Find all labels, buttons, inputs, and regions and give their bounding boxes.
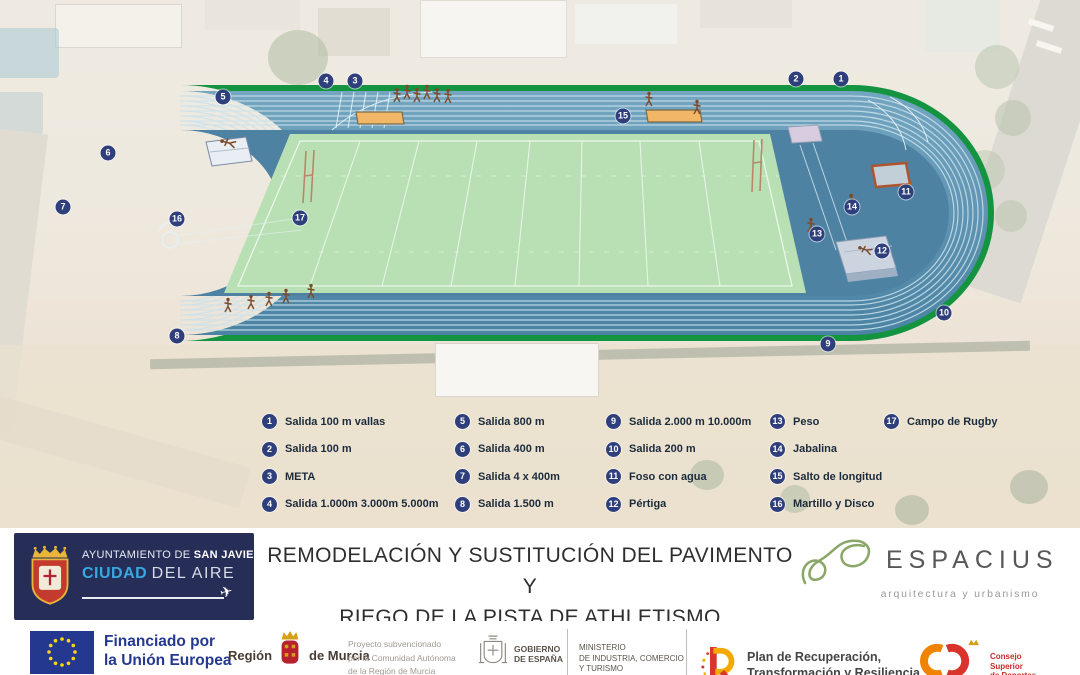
legend-label: Pértiga xyxy=(629,498,666,510)
map-legend: 1Salida 100 m vallas2Salida 100 m3META4S… xyxy=(0,0,1080,528)
espacius-swirl-icon xyxy=(800,534,884,590)
gobierno-line1: GOBIERNO xyxy=(514,644,563,654)
san-javier-logo: AYUNTAMIENTO DE SAN JAVIER CIUDAD DEL AI… xyxy=(14,533,254,620)
gobierno-line2: DE ESPAÑA xyxy=(514,654,563,664)
legend-item-16: 16Martillo y Disco xyxy=(770,497,874,512)
eu-funding-line1: Financiado por xyxy=(104,632,231,651)
legend-badge-17: 17 xyxy=(884,414,899,429)
legend-badge-4: 4 xyxy=(262,497,277,512)
legend-badge-10: 10 xyxy=(606,442,621,457)
legend-item-10: 10Salida 200 m xyxy=(606,442,696,457)
legend-label: Peso xyxy=(793,416,819,428)
gobierno-text: GOBIERNO DE ESPAÑA xyxy=(514,644,563,664)
murcia-shield-icon xyxy=(277,630,303,672)
legend-item-8: 8Salida 1.500 m xyxy=(455,497,554,512)
legend-label: Foso con agua xyxy=(629,471,707,483)
prtr-r-logo-icon xyxy=(700,645,742,675)
prtr-text: Plan de Recuperación, Transformación y R… xyxy=(747,650,920,675)
san-javier-crest-icon xyxy=(26,544,74,608)
legend-item-17: 17Campo de Rugby xyxy=(884,414,997,429)
legend-item-2: 2Salida 100 m xyxy=(262,442,352,457)
legend-label: Salto de longitud xyxy=(793,471,882,483)
airplane-icon: ✈ xyxy=(218,582,235,603)
subsidy-text: Proyecto subvencionado por la Comunidad … xyxy=(348,638,456,675)
legend-badge-2: 2 xyxy=(262,442,277,457)
title-band: AYUNTAMIENTO DE SAN JAVIER CIUDAD DEL AI… xyxy=(0,528,1080,621)
espacius-logo: ESPACIUS arquitectura y urbanismo xyxy=(800,532,1075,617)
eu-funding-line2: la Unión Europea xyxy=(104,651,231,670)
prtr-line1: Plan de Recuperación, xyxy=(747,650,920,666)
legend-label: Salida 100 m vallas xyxy=(285,416,385,428)
legend-label: Salida 100 m xyxy=(285,443,352,455)
legend-badge-16: 16 xyxy=(770,497,785,512)
espacius-name: ESPACIUS xyxy=(886,546,1059,575)
divider xyxy=(686,629,687,675)
subsidy-line1: Proyecto subvencionado xyxy=(348,638,456,652)
ministerio-text: MINISTERIO DE INDUSTRIA, COMERCIO Y TURI… xyxy=(579,643,684,675)
legend-item-13: 13Peso xyxy=(770,414,819,429)
ciudad-del-aire-line: CIUDAD DEL AIRE xyxy=(82,565,250,583)
project-title: REMODELACIÓN Y SUSTITUCIÓN DEL PAVIMENTO… xyxy=(265,540,795,633)
spain-coat-of-arms-icon xyxy=(478,632,508,672)
legend-label: Salida 800 m xyxy=(478,416,545,428)
ministerio-line2: DE INDUSTRIA, COMERCIO xyxy=(579,654,684,665)
poster: 1234567891011121314151617 1Salida 100 m … xyxy=(0,0,1080,675)
legend-item-3: 3META xyxy=(262,469,315,484)
prtr-line2: Transformación y Resiliencia xyxy=(747,666,920,675)
legend-badge-5: 5 xyxy=(455,414,470,429)
ministerio-line1: MINISTERIO xyxy=(579,643,684,654)
legend-badge-13: 13 xyxy=(770,414,785,429)
csd-logo-icon xyxy=(912,638,986,675)
legend-item-14: 14Jabalina xyxy=(770,442,837,457)
legend-label: Salida 1.000m 3.000m 5.000m xyxy=(285,498,439,510)
legend-badge-15: 15 xyxy=(770,469,785,484)
legend-badge-7: 7 xyxy=(455,469,470,484)
funding-bar: Financiado por la Unión Europea NextGene… xyxy=(0,621,1080,675)
subsidy-line3: de la Región de Murcia xyxy=(348,665,456,675)
legend-item-12: 12Pértiga xyxy=(606,497,666,512)
legend-label: Salida 400 m xyxy=(478,443,545,455)
legend-label: Salida 200 m xyxy=(629,443,696,455)
legend-badge-6: 6 xyxy=(455,442,470,457)
legend-item-6: 6Salida 400 m xyxy=(455,442,545,457)
legend-badge-11: 11 xyxy=(606,469,621,484)
legend-item-4: 4Salida 1.000m 3.000m 5.000m xyxy=(262,497,439,512)
ayuntamiento-line: AYUNTAMIENTO DE SAN JAVIER xyxy=(82,549,250,561)
csd-line3: de Deportes xyxy=(990,671,1036,675)
csd-line2: Superior xyxy=(990,662,1036,672)
legend-item-11: 11Foso con agua xyxy=(606,469,707,484)
espacius-tagline: arquitectura y urbanismo xyxy=(862,588,1058,600)
legend-item-7: 7Salida 4 x 400m xyxy=(455,469,560,484)
eu-flag-icon xyxy=(30,631,94,674)
legend-badge-14: 14 xyxy=(770,442,785,457)
project-title-line1: REMODELACIÓN Y SUSTITUCIÓN DEL PAVIMENTO… xyxy=(265,540,795,602)
murcia-label-left: Región xyxy=(228,648,272,663)
legend-label: Salida 1.500 m xyxy=(478,498,554,510)
legend-label: Jabalina xyxy=(793,443,837,455)
san-javier-wordmark: AYUNTAMIENTO DE SAN JAVIER CIUDAD DEL AI… xyxy=(82,549,250,583)
legend-badge-1: 1 xyxy=(262,414,277,429)
legend-label: Salida 4 x 400m xyxy=(478,471,560,483)
legend-badge-3: 3 xyxy=(262,469,277,484)
aerial-photo-background: 1234567891011121314151617 1Salida 100 m … xyxy=(0,0,1080,528)
ministerio-line3: Y TURISMO xyxy=(579,664,684,675)
contrail-line xyxy=(82,597,224,599)
legend-label: Campo de Rugby xyxy=(907,416,997,428)
legend-badge-9: 9 xyxy=(606,414,621,429)
legend-item-9: 9Salida 2.000 m 10.000m xyxy=(606,414,751,429)
legend-label: META xyxy=(285,471,315,483)
legend-label: Salida 2.000 m 10.000m xyxy=(629,416,751,428)
legend-badge-8: 8 xyxy=(455,497,470,512)
legend-badge-12: 12 xyxy=(606,497,621,512)
eu-funding-text: Financiado por la Unión Europea NextGene… xyxy=(104,632,231,675)
legend-label: Martillo y Disco xyxy=(793,498,874,510)
csd-line1: Consejo xyxy=(990,652,1036,662)
legend-item-5: 5Salida 800 m xyxy=(455,414,545,429)
csd-text: Consejo Superior de Deportes xyxy=(990,652,1036,675)
legend-item-1: 1Salida 100 m vallas xyxy=(262,414,385,429)
divider xyxy=(567,629,568,675)
subsidy-line2: por la Comunidad Autónoma xyxy=(348,652,456,666)
legend-item-15: 15Salto de longitud xyxy=(770,469,882,484)
